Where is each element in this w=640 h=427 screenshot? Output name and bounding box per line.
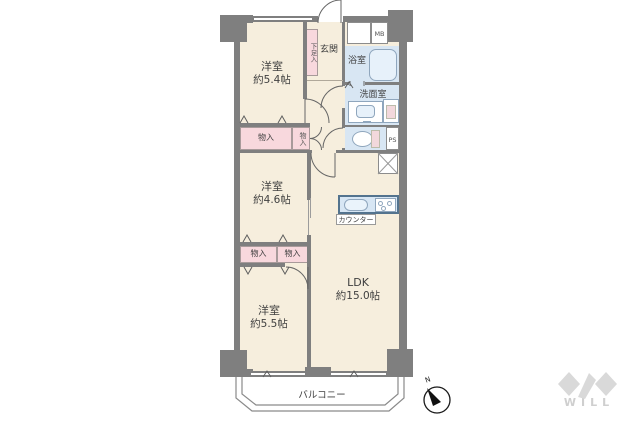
wall-hall-bottom <box>336 150 345 153</box>
sliding-door-line <box>308 200 309 235</box>
room-size: 約15.0帖 <box>318 290 398 303</box>
pipe-space-box: PS <box>386 127 399 150</box>
compass-north-label: N <box>422 375 434 387</box>
room-name: 洋室 <box>240 60 304 74</box>
washer-pan <box>386 105 396 119</box>
closet1-label: 物入 <box>240 133 292 143</box>
meter-box-label: MB <box>372 30 387 38</box>
room-name: 洋室 <box>236 304 302 318</box>
closet2-label: 物入 <box>295 130 307 148</box>
meter-box-left <box>347 22 371 44</box>
will-logo-text: WILL <box>556 396 622 409</box>
window-top <box>254 17 312 21</box>
bedroom3-label: 洋室 約5.5帖 <box>236 304 302 331</box>
toilet-tank <box>371 130 380 148</box>
bathroom-label: 浴室 <box>344 56 370 67</box>
wall-top <box>343 16 390 22</box>
meter-box: MB <box>371 22 388 44</box>
shoe-closet-label: 下足入 <box>306 33 317 73</box>
entrance-label: 玄関 <box>314 45 344 56</box>
washer-space <box>383 99 399 123</box>
wall-bottom-tab <box>305 367 331 377</box>
wall-washroom-toilet <box>345 125 399 127</box>
vanity-sink <box>348 101 383 123</box>
floor-plan: MB PS カウンター <box>0 0 640 427</box>
wall-room2-closet <box>240 242 311 246</box>
bathtub <box>369 49 397 81</box>
burner-icon <box>381 206 386 211</box>
sliding-door-line <box>310 198 311 218</box>
entrance-step-line <box>307 80 343 81</box>
window-balcony-left <box>251 372 305 376</box>
pipe-space-label: PS <box>387 136 398 144</box>
window-balcony-right <box>331 372 386 376</box>
closet3-label: 物入 <box>240 249 277 259</box>
kitchen-stove <box>375 198 396 212</box>
wall-room1-closet <box>240 123 310 127</box>
balcony-label: バルコニー <box>292 390 352 402</box>
entrance-door-arc <box>318 0 341 23</box>
counter-tag: カウンター <box>336 214 376 225</box>
washroom-label: 洗面室 <box>351 90 395 101</box>
compass-icon <box>424 387 450 413</box>
wall-bath-washroom <box>345 82 349 85</box>
will-logo-icon <box>558 372 617 399</box>
ldk-label: LDK 約15.0帖 <box>318 276 398 303</box>
wall-hall-bottom <box>240 150 312 153</box>
room-name: LDK <box>318 276 398 290</box>
wall-right <box>399 42 407 349</box>
room-size: 約4.6帖 <box>238 194 306 207</box>
bedroom2-label: 洋室 約4.6帖 <box>238 180 306 207</box>
toilet-bowl <box>352 131 373 147</box>
wall-closet-room3 <box>240 263 285 267</box>
vanity-tap <box>363 121 371 122</box>
room-size: 約5.5帖 <box>236 318 302 331</box>
wall-room2-ldk <box>307 153 311 200</box>
vanity-basin <box>356 105 375 118</box>
room-name: 洋室 <box>238 180 306 194</box>
bedroom1-label: 洋室 約5.4帖 <box>240 60 304 87</box>
kitchen-sink <box>344 199 368 211</box>
burner-icon <box>387 201 392 206</box>
wall-wet-bottom <box>345 150 399 153</box>
pillar-top-right <box>388 10 413 42</box>
wall-bath-washroom <box>365 82 399 85</box>
room-size: 約5.4帖 <box>240 74 304 87</box>
shaft-box <box>378 153 398 174</box>
closet4-label: 物入 <box>277 249 308 259</box>
counter-label: カウンター <box>337 216 375 225</box>
